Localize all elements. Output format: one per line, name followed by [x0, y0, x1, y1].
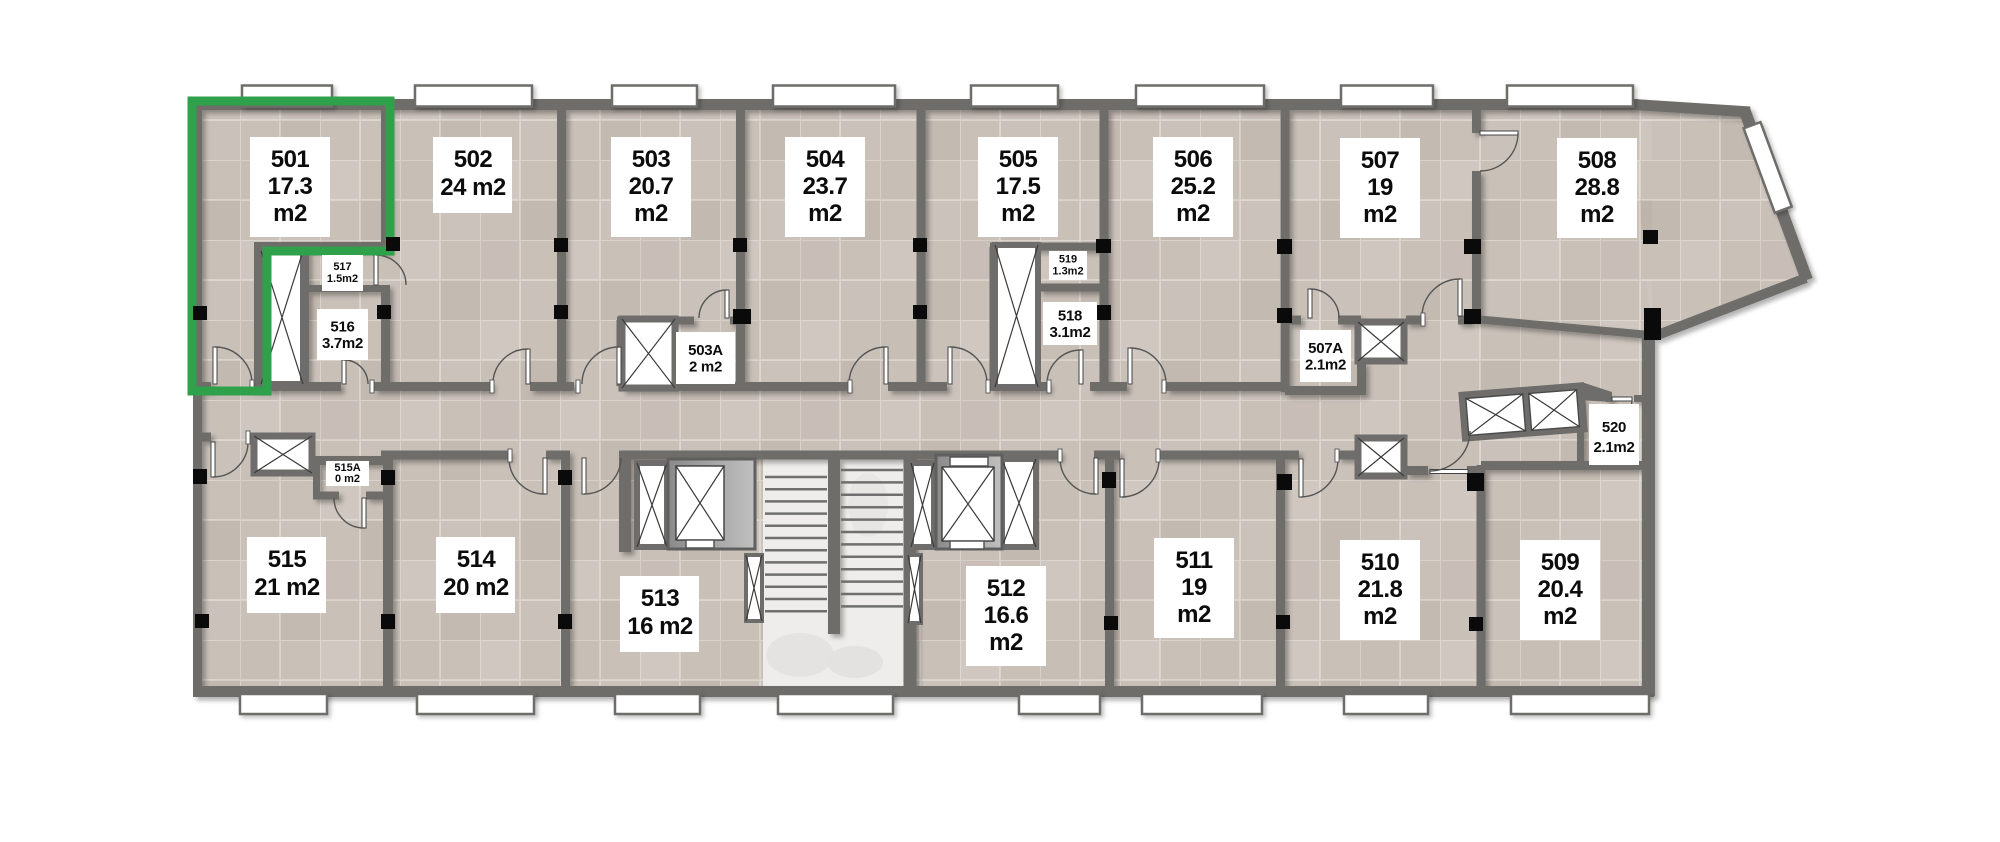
svg-text:2 m2: 2 m2: [689, 359, 722, 376]
svg-text:m2: m2: [1177, 601, 1211, 628]
svg-text:17.5: 17.5: [996, 173, 1041, 200]
svg-text:17.3: 17.3: [268, 173, 313, 200]
svg-text:3.7m2: 3.7m2: [322, 335, 363, 352]
svg-text:502: 502: [454, 146, 493, 173]
svg-text:516: 516: [330, 319, 354, 336]
svg-text:515: 515: [268, 546, 307, 573]
svg-text:511: 511: [1175, 547, 1212, 574]
svg-text:510: 510: [1361, 549, 1400, 576]
svg-text:19: 19: [1181, 574, 1207, 601]
svg-text:21 m2: 21 m2: [254, 574, 320, 601]
svg-text:513: 513: [641, 585, 680, 612]
svg-text:m2: m2: [808, 200, 842, 227]
svg-text:23.7: 23.7: [803, 173, 848, 200]
svg-text:m2: m2: [1363, 201, 1397, 228]
svg-text:19: 19: [1367, 174, 1393, 201]
svg-text:2.1m2: 2.1m2: [1593, 439, 1634, 456]
svg-text:503: 503: [632, 146, 671, 173]
svg-text:518: 518: [1058, 308, 1082, 325]
svg-text:28.8: 28.8: [1575, 174, 1620, 201]
svg-text:21.8: 21.8: [1358, 576, 1403, 603]
svg-text:501: 501: [271, 146, 310, 173]
svg-text:504: 504: [806, 146, 846, 173]
svg-text:503A: 503A: [688, 342, 723, 359]
svg-text:20.4: 20.4: [1538, 576, 1584, 603]
svg-text:24 m2: 24 m2: [440, 174, 506, 201]
svg-text:507A: 507A: [1308, 340, 1343, 357]
svg-text:3.1m2: 3.1m2: [1049, 324, 1090, 341]
svg-text:507: 507: [1361, 147, 1400, 174]
svg-text:509: 509: [1541, 549, 1580, 576]
svg-text:512: 512: [987, 575, 1026, 602]
svg-text:16.6: 16.6: [984, 602, 1029, 629]
svg-text:508: 508: [1578, 147, 1617, 174]
svg-text:1.3m2: 1.3m2: [1052, 266, 1083, 278]
svg-text:0 m2: 0 m2: [335, 473, 360, 485]
svg-text:m2: m2: [1176, 200, 1210, 227]
svg-text:m2: m2: [634, 200, 668, 227]
svg-text:m2: m2: [989, 629, 1023, 656]
svg-text:20.7: 20.7: [629, 173, 674, 200]
svg-text:520: 520: [1602, 419, 1626, 436]
svg-text:514: 514: [457, 546, 497, 573]
svg-text:1.5m2: 1.5m2: [327, 273, 358, 285]
svg-text:2.1m2: 2.1m2: [1305, 357, 1346, 374]
svg-text:m2: m2: [1001, 200, 1035, 227]
svg-text:25.2: 25.2: [1171, 173, 1216, 200]
svg-text:20 m2: 20 m2: [443, 574, 509, 601]
svg-text:m2: m2: [1543, 603, 1577, 630]
svg-text:m2: m2: [1580, 201, 1614, 228]
svg-text:519: 519: [1059, 254, 1077, 266]
svg-text:16 m2: 16 m2: [627, 613, 693, 640]
svg-text:505: 505: [999, 146, 1038, 173]
svg-text:506: 506: [1174, 146, 1213, 173]
svg-text:517: 517: [333, 261, 351, 273]
svg-text:m2: m2: [273, 200, 307, 227]
svg-text:m2: m2: [1363, 603, 1397, 630]
